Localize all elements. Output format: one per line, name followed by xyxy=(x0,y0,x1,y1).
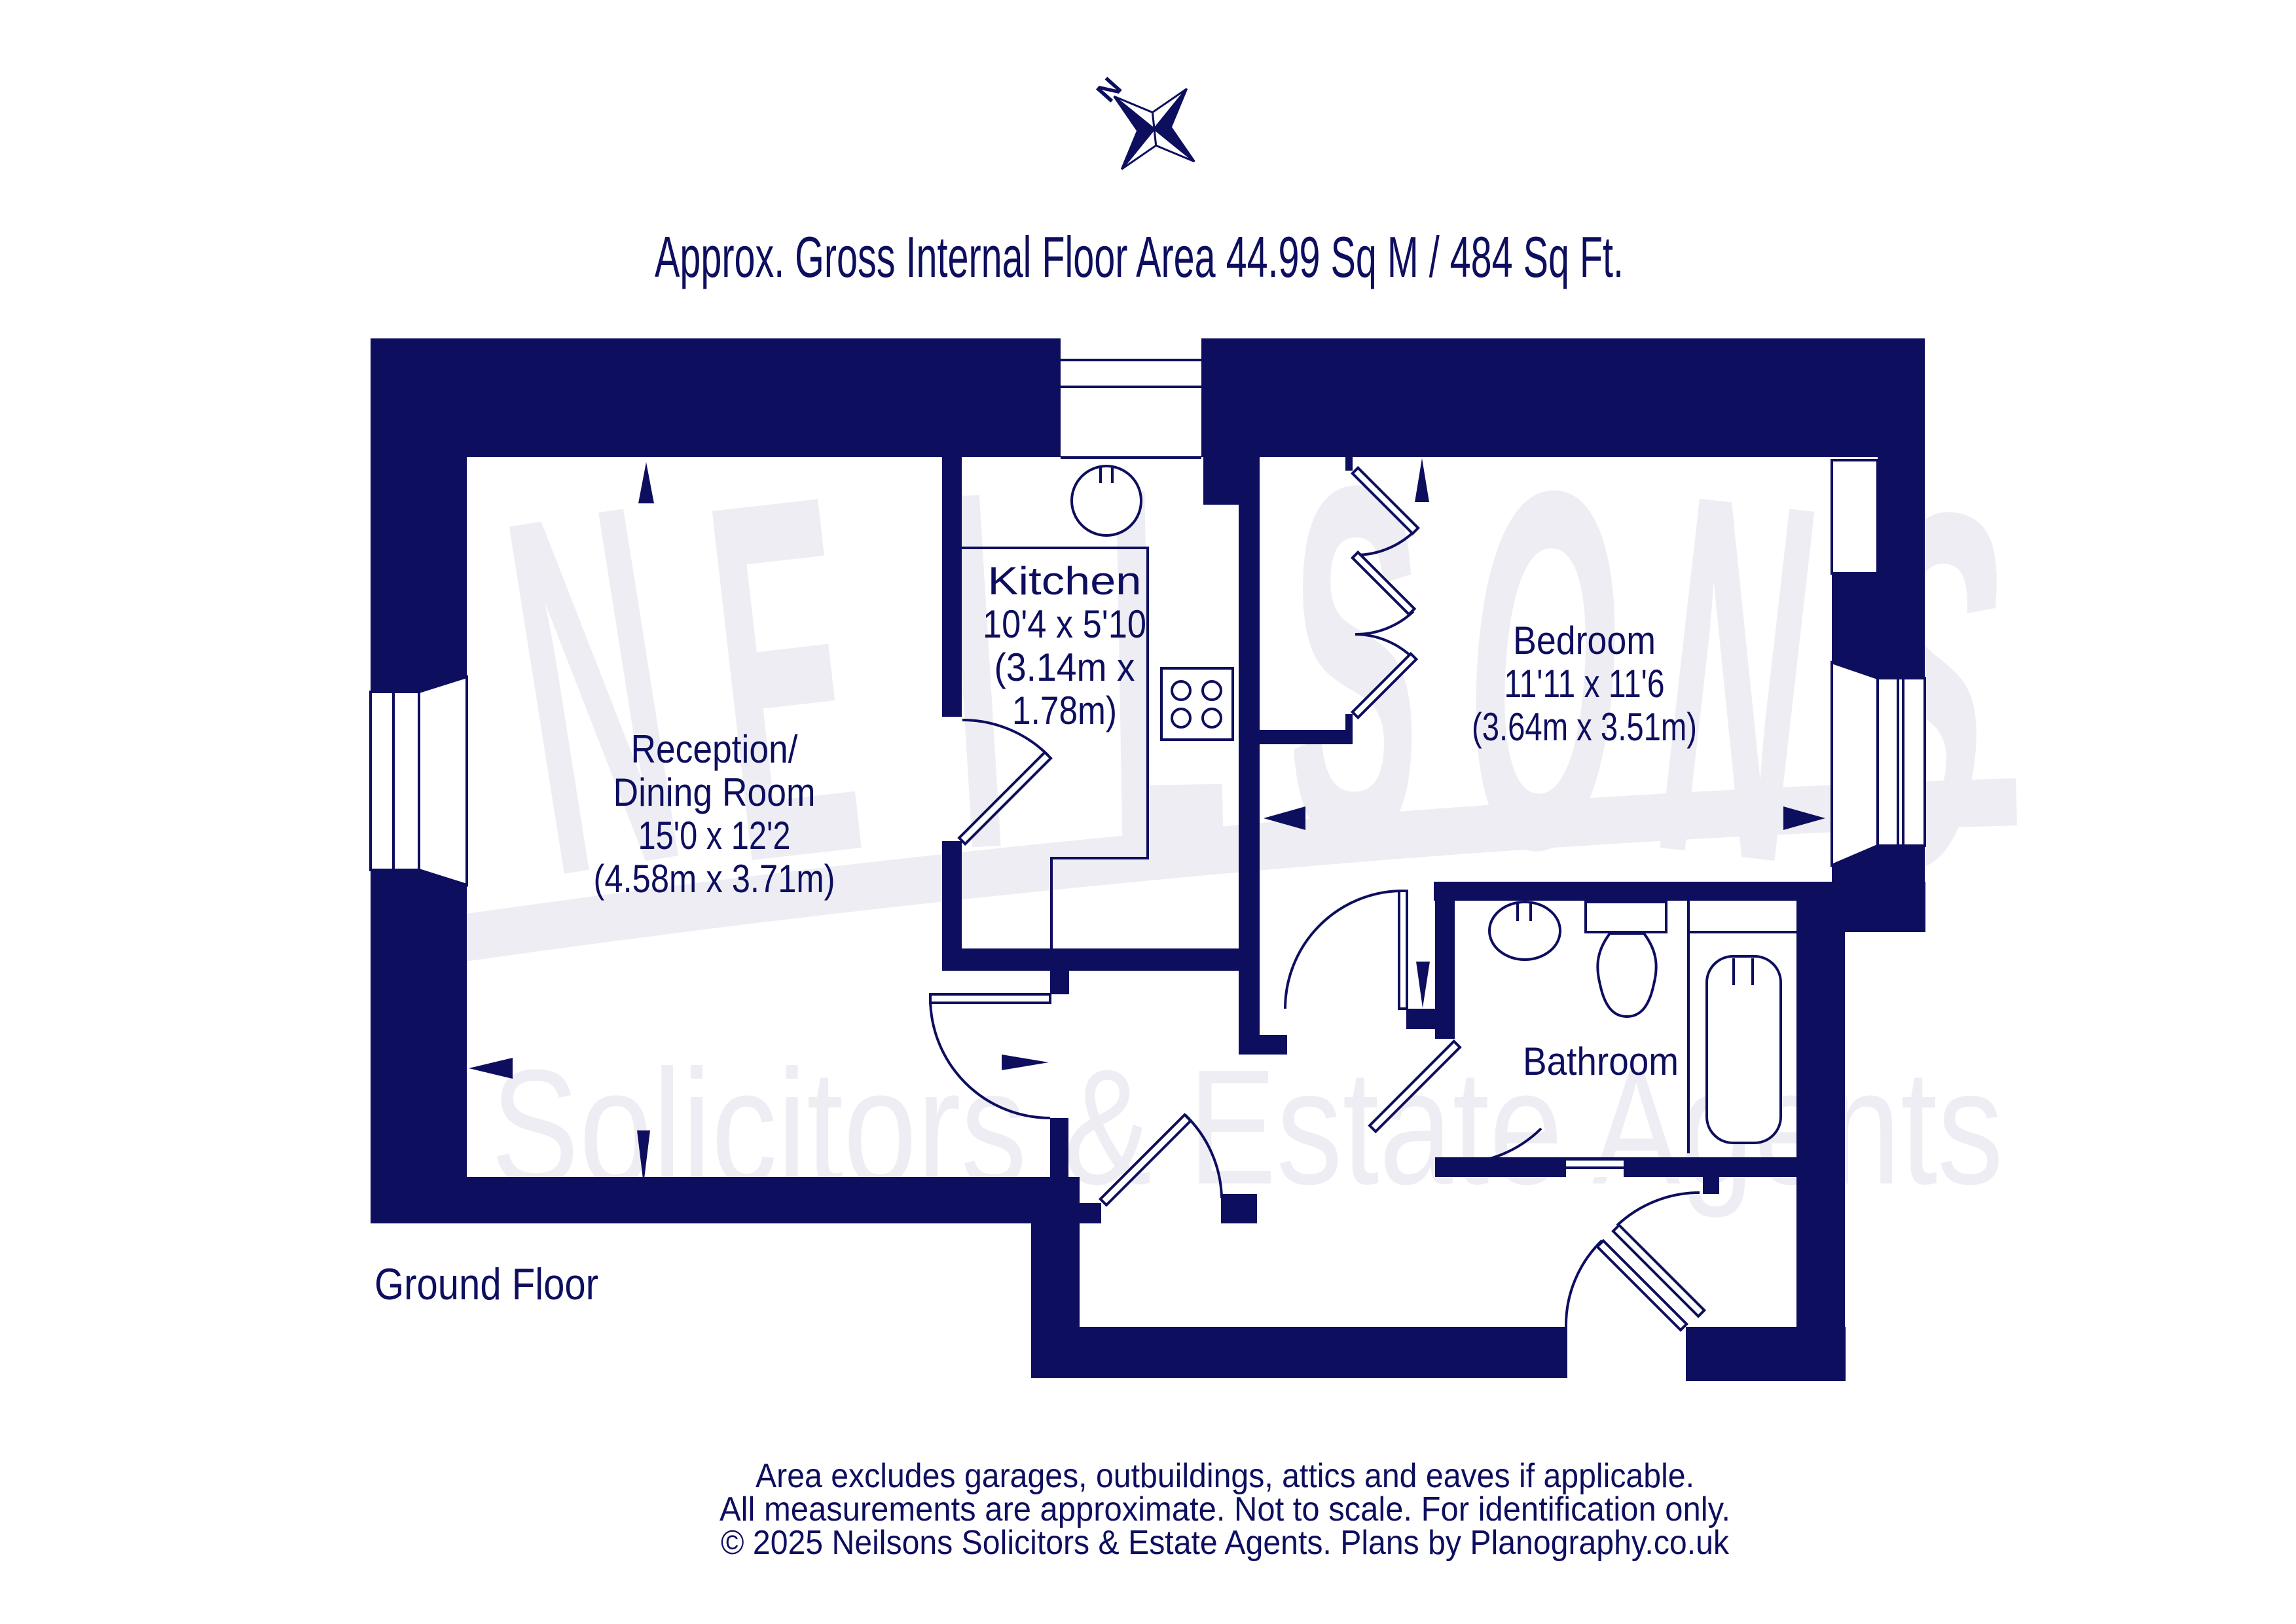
svg-text:Area excludes garages, outbuil: Area excludes garages, outbuildings, att… xyxy=(756,1457,1694,1495)
svg-text:Bathroom: Bathroom xyxy=(1523,1039,1679,1083)
svg-text:11'11 x 11'6: 11'11 x 11'6 xyxy=(1504,662,1665,706)
svg-text:All measurements are approxima: All measurements are approximate. Not to… xyxy=(720,1490,1730,1528)
svg-text:Approx. Gross Internal Floor A: Approx. Gross Internal Floor Area 44.99 … xyxy=(655,225,1624,289)
svg-text:Kitchen: Kitchen xyxy=(988,559,1142,603)
svg-text:Bedroom: Bedroom xyxy=(1513,619,1656,662)
svg-text:1.78m): 1.78m) xyxy=(1012,689,1117,732)
svg-text:(3.64m x 3.51m): (3.64m x 3.51m) xyxy=(1472,705,1697,749)
svg-text:15'0 x 12'2: 15'0 x 12'2 xyxy=(638,814,791,857)
svg-text:Ground Floor: Ground Floor xyxy=(374,1259,598,1309)
svg-text:10'4 x 5'10: 10'4 x 5'10 xyxy=(983,602,1146,646)
svg-text:© 2025 Neilsons Solicitors & E: © 2025 Neilsons Solicitors & Estate Agen… xyxy=(721,1524,1730,1562)
svg-text:(3.14m x: (3.14m x xyxy=(994,645,1135,689)
svg-text:Reception/: Reception/ xyxy=(631,727,798,771)
svg-text:Dining Room: Dining Room xyxy=(613,770,816,814)
svg-text:(4.58m x 3.71m): (4.58m x 3.71m) xyxy=(594,857,835,901)
